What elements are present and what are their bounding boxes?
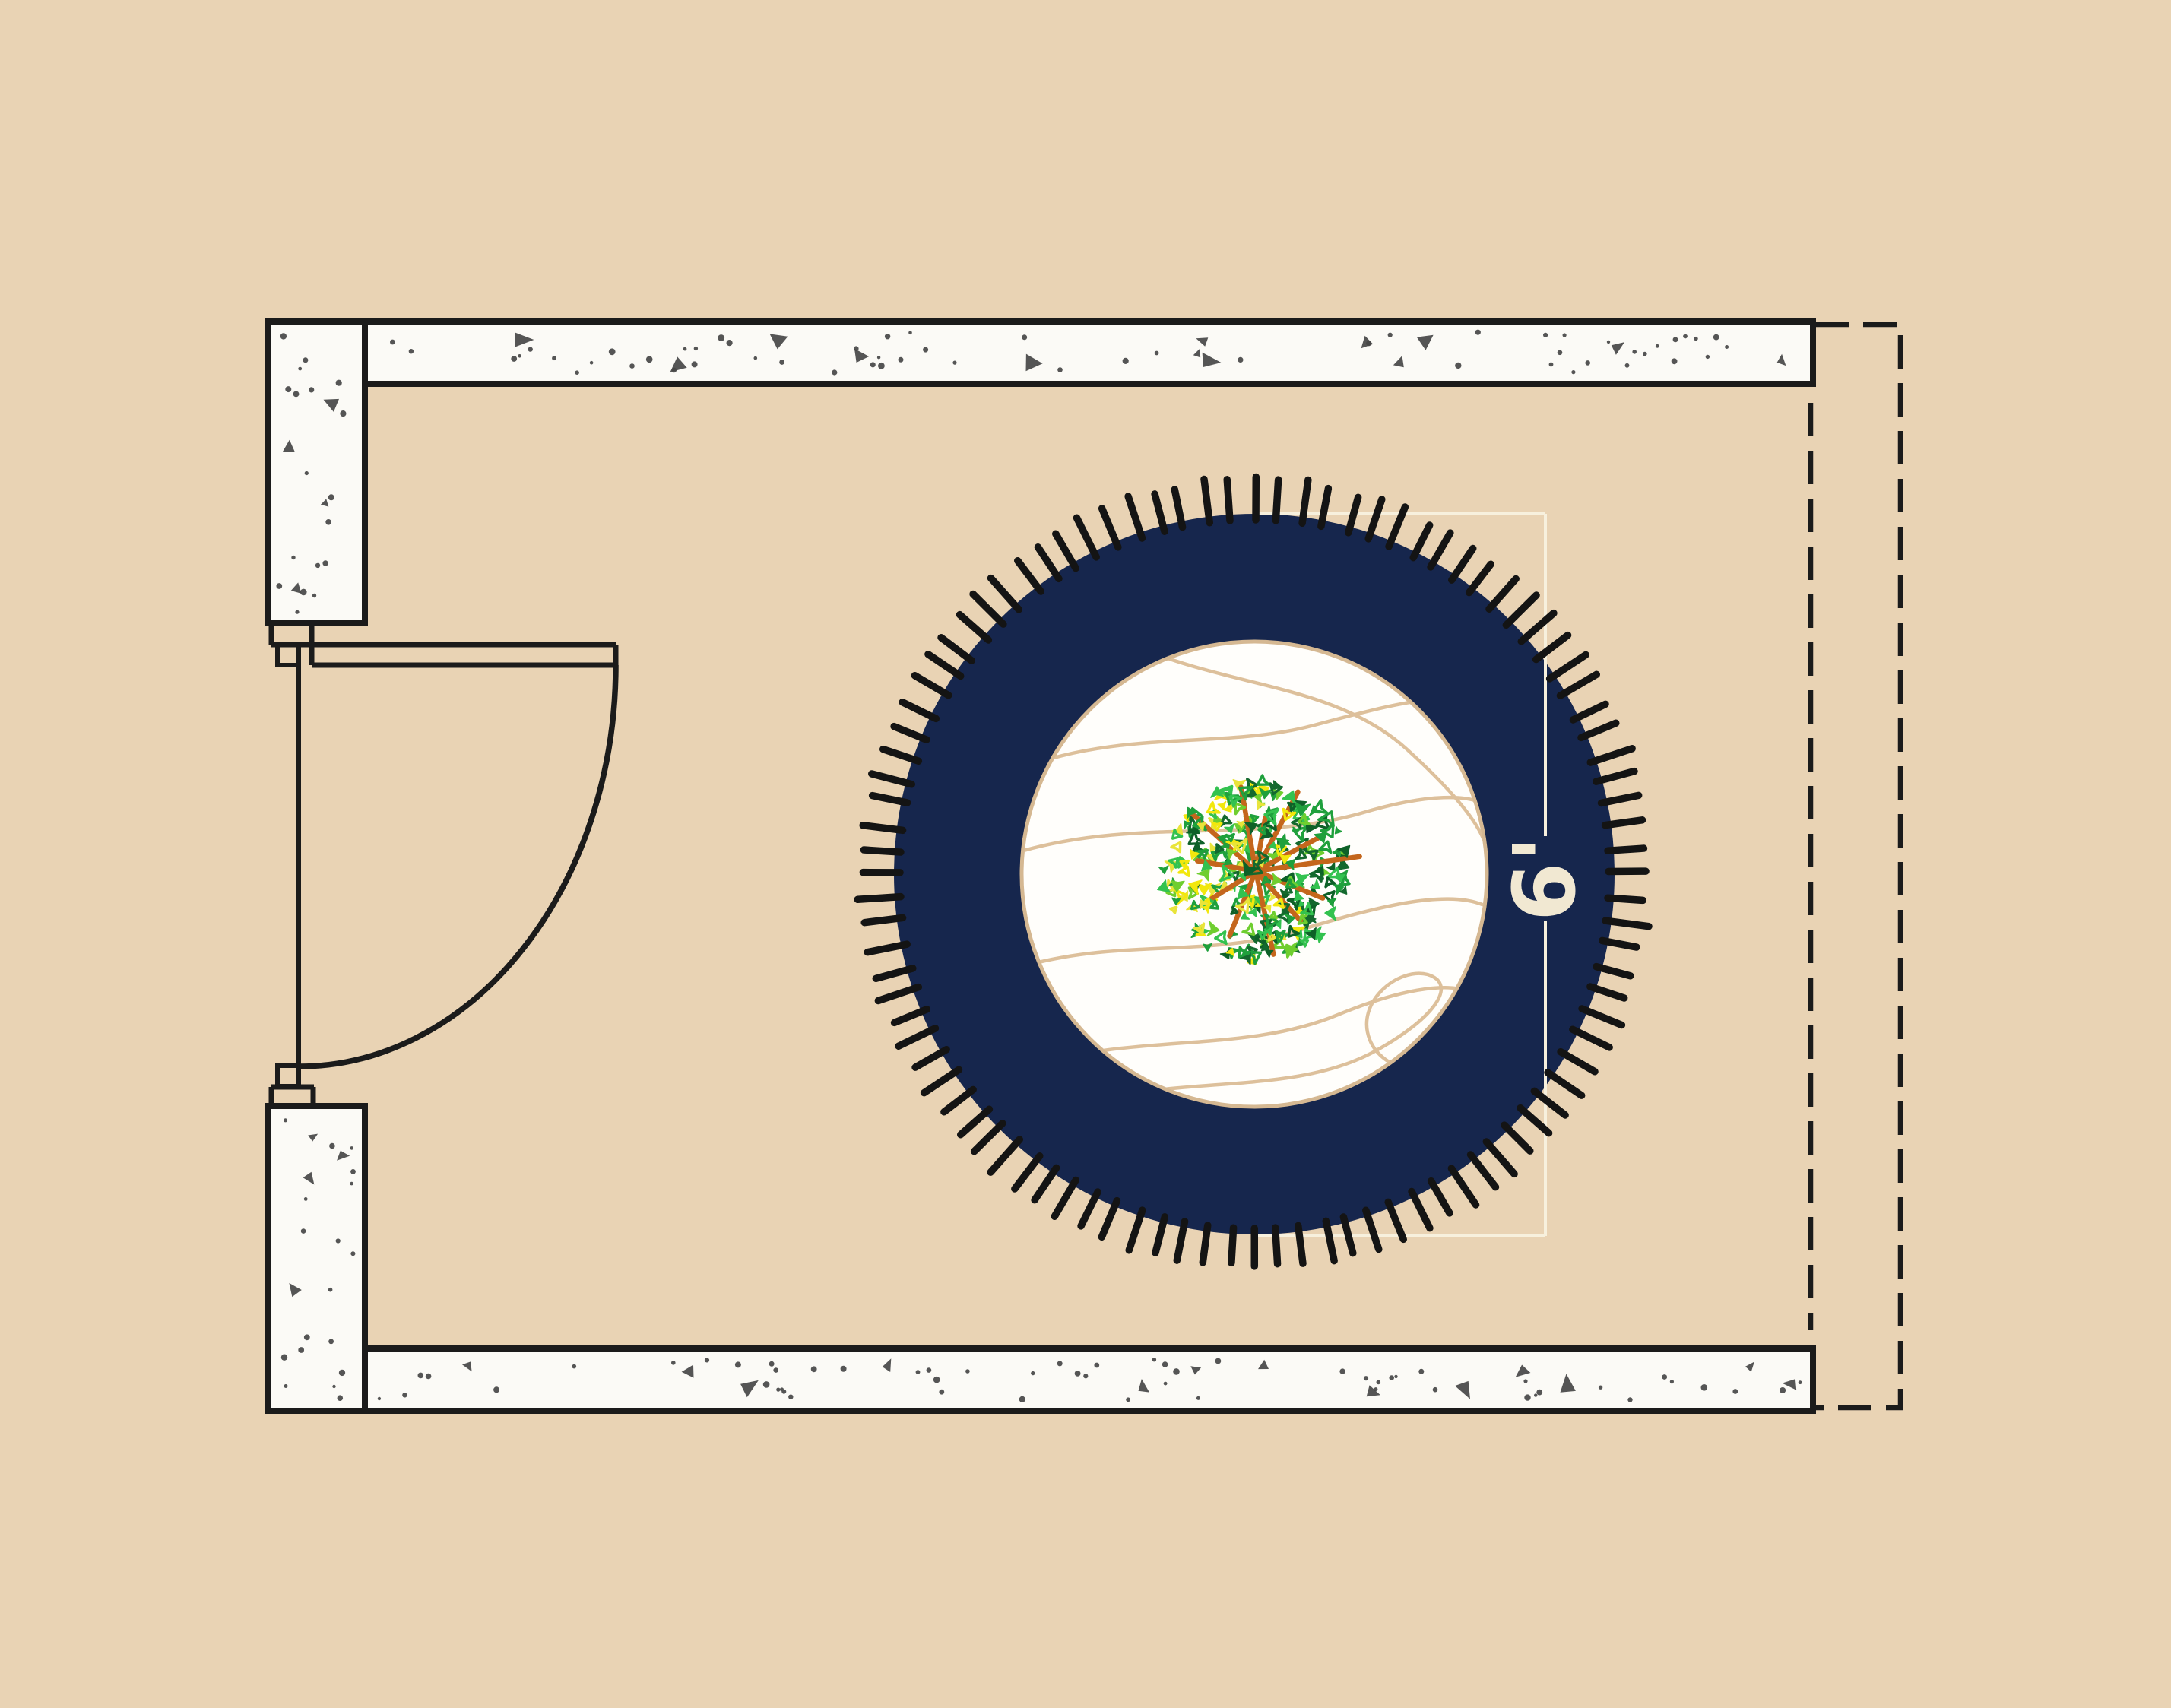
floor-plan-drawing (0, 0, 2171, 1708)
wall-rect-top (365, 322, 1813, 384)
wall-rect-left-upper (268, 322, 365, 623)
wall-left-lower (268, 1106, 365, 1411)
rug-dimension-label: 6' (1503, 836, 1588, 921)
door-swing-arc (299, 665, 616, 1066)
dashed-opening-group (1811, 325, 1900, 1408)
door-group (271, 626, 616, 1104)
wall-rect-bottom (365, 1348, 1813, 1411)
floor-plan-canvas: 6' (0, 0, 2171, 1708)
wall-top (365, 322, 1813, 384)
door-hinge-block-0 (277, 645, 299, 665)
wall-bottom (365, 1348, 1813, 1411)
wall-left-upper (268, 322, 365, 623)
door-hinge-block-1 (277, 1066, 299, 1086)
wall-rect-left-lower (268, 1106, 365, 1411)
